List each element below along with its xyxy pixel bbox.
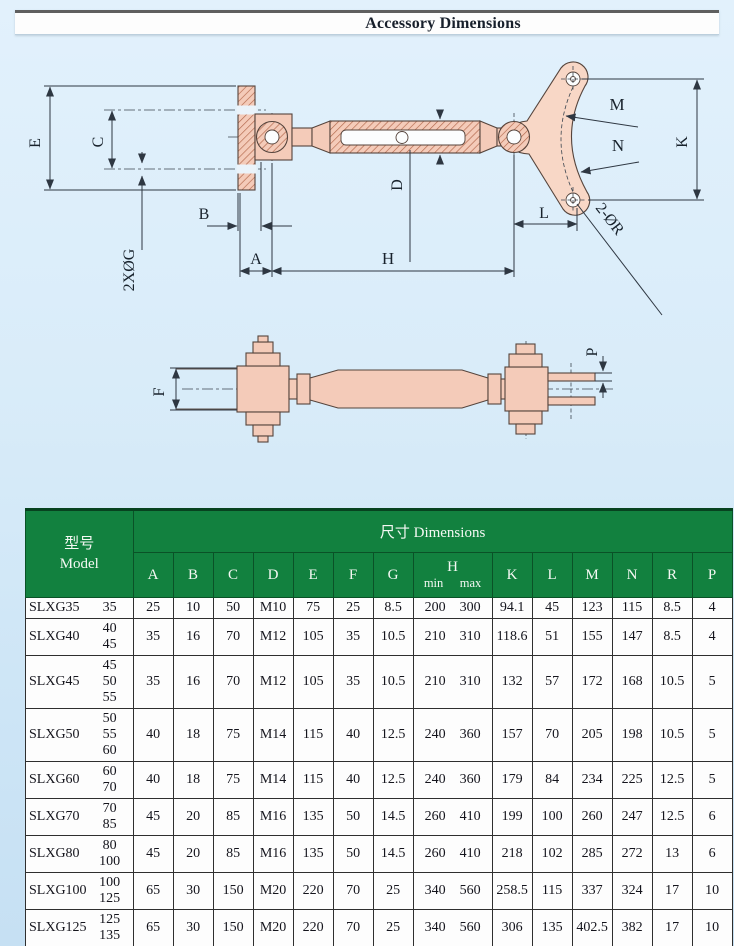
size-value: 45 (87, 637, 133, 653)
cell-c: 150 (213, 910, 253, 946)
cell-p: 10 (692, 910, 732, 946)
cell-g: 10.5 (373, 619, 413, 656)
model-sizes: 505560 (87, 711, 133, 759)
cell-a: 35 (133, 619, 173, 656)
col-header-m: M (572, 553, 612, 598)
model-sizes: 125135 (87, 912, 133, 944)
cell-f: 35 (333, 656, 373, 709)
cell-b: 30 (173, 910, 213, 946)
cell-n: 324 (612, 873, 652, 910)
dim-label-p: P (584, 347, 601, 356)
model-name: SLXG125 (26, 920, 87, 936)
page-title: Accessory Dimensions (365, 15, 521, 33)
size-value: 55 (87, 690, 133, 706)
model-cell: SLXG3535 (26, 598, 134, 619)
cell-g: 12.5 (373, 762, 413, 799)
size-value: 100 (87, 854, 133, 870)
table-row: SLXG1001001256530150M202207025340560258.… (26, 873, 733, 910)
size-value: 40 (87, 621, 133, 637)
cell-k: 199 (492, 799, 532, 836)
cell-a: 65 (133, 873, 173, 910)
size-value: 125 (87, 891, 133, 907)
dimensions-group-header: 尺寸 Dimensions (133, 510, 732, 553)
table-body: SLXG3535251050M1075258.520030094.1451231… (26, 598, 733, 946)
cell-f: 40 (333, 762, 373, 799)
table-row: SLXG3535251050M1075258.520030094.1451231… (26, 598, 733, 619)
cell-d: M12 (253, 619, 293, 656)
model-name: SLXG45 (26, 674, 80, 690)
dim-label-l: L (539, 205, 549, 222)
model-cell: SLXG404045 (26, 619, 134, 656)
cell-g: 14.5 (373, 836, 413, 873)
cell-l: 102 (532, 836, 572, 873)
cell-d: M14 (253, 709, 293, 762)
cell-l: 45 (532, 598, 572, 619)
cell-f: 50 (333, 799, 373, 836)
cell-c: 70 (213, 619, 253, 656)
cell-c: 85 (213, 799, 253, 836)
cell-e: 115 (293, 709, 333, 762)
cell-p: 5 (692, 709, 732, 762)
cell-g: 14.5 (373, 799, 413, 836)
cell-f: 50 (333, 836, 373, 873)
model-sizes: 455055 (87, 658, 133, 706)
table-row: SLXG45455055351670M121053510.52103101325… (26, 656, 733, 709)
cell-b: 20 (173, 836, 213, 873)
cell-c: 75 (213, 709, 253, 762)
title-bar: Accessory Dimensions (15, 10, 719, 35)
cell-b: 16 (173, 656, 213, 709)
model-cell: SLXG8080100 (26, 836, 134, 873)
cell-d: M20 (253, 910, 293, 946)
cell-k: 94.1 (492, 598, 532, 619)
cell-r: 12.5 (652, 799, 692, 836)
cell-d: M10 (253, 598, 293, 619)
cell-k: 157 (492, 709, 532, 762)
cell-g: 12.5 (373, 709, 413, 762)
size-value: 70 (87, 780, 133, 796)
cell-h-max: 560 (460, 883, 481, 899)
cell-h-min: 340 (425, 883, 446, 899)
cell-r: 10.5 (652, 656, 692, 709)
table-header: 型号 Model 尺寸 Dimensions ABCDEFGHminmaxKLM… (26, 510, 733, 598)
cell-b: 10 (173, 598, 213, 619)
model-name: SLXG70 (26, 809, 80, 825)
table-row: SLXG50505560401875M141154012.52403601577… (26, 709, 733, 762)
cell-l: 57 (532, 656, 572, 709)
cell-a: 40 (133, 709, 173, 762)
cell-f: 70 (333, 910, 373, 946)
dim-label-a: A (250, 251, 262, 268)
model-name: SLXG100 (26, 883, 87, 899)
side-view: F P (151, 336, 614, 442)
cell-f: 35 (333, 619, 373, 656)
cell-b: 18 (173, 762, 213, 799)
cell-m: 337 (572, 873, 612, 910)
cell-m: 402.5 (572, 910, 612, 946)
side-left-clevis (237, 366, 289, 412)
cell-e: 105 (293, 619, 333, 656)
cell-h-max: 410 (460, 809, 481, 825)
model-sizes: 4045 (87, 621, 133, 653)
cell-r: 12.5 (652, 762, 692, 799)
dim-label-2xog: 2XØG (121, 248, 138, 291)
cell-n: 382 (612, 910, 652, 946)
cell-h-min: 210 (425, 629, 446, 645)
cell-c: 85 (213, 836, 253, 873)
size-value: 35 (87, 600, 133, 616)
cell-e: 135 (293, 799, 333, 836)
model-sizes: 100125 (87, 875, 133, 907)
dim-label-m: M (609, 95, 624, 114)
cell-k: 132 (492, 656, 532, 709)
cell-c: 70 (213, 656, 253, 709)
cell-m: 234 (572, 762, 612, 799)
cell-c: 75 (213, 762, 253, 799)
col-header-h: Hminmax (413, 553, 492, 598)
cell-h-min: 240 (425, 772, 446, 788)
cell-h-min: 210 (425, 674, 446, 690)
model-name: SLXG40 (26, 629, 80, 645)
cell-h: 210310 (413, 656, 492, 709)
dim-label-f: F (151, 387, 168, 396)
cell-a: 40 (133, 762, 173, 799)
dim-label-k: K (674, 136, 691, 148)
dim-label-b: B (199, 206, 210, 223)
size-value: 135 (87, 928, 133, 944)
cell-n: 247 (612, 799, 652, 836)
col-header-l: L (532, 553, 572, 598)
cell-a: 65 (133, 910, 173, 946)
cell-r: 17 (652, 910, 692, 946)
col-header-p: P (692, 553, 732, 598)
col-header-b: B (173, 553, 213, 598)
model-cell: SLXG45455055 (26, 656, 134, 709)
cell-m: 260 (572, 799, 612, 836)
cell-r: 8.5 (652, 619, 692, 656)
cell-e: 220 (293, 873, 333, 910)
cell-h: 240360 (413, 709, 492, 762)
size-value: 55 (87, 727, 133, 743)
col-header-r: R (652, 553, 692, 598)
size-value: 85 (87, 817, 133, 833)
cell-g: 10.5 (373, 656, 413, 709)
cell-r: 8.5 (652, 598, 692, 619)
model-cell: SLXG100100125 (26, 873, 134, 910)
table-row: SLXG1251251356530150M2022070253405603061… (26, 910, 733, 946)
cell-a: 25 (133, 598, 173, 619)
cell-b: 20 (173, 799, 213, 836)
cell-h-max: 560 (460, 920, 481, 936)
cell-e: 105 (293, 656, 333, 709)
cell-l: 70 (532, 709, 572, 762)
cell-h-min: 240 (425, 727, 446, 743)
cell-h-max: 310 (460, 674, 481, 690)
col-header-a: A (133, 553, 173, 598)
cell-g: 25 (373, 910, 413, 946)
cell-n: 225 (612, 762, 652, 799)
cell-h-min: 340 (425, 920, 446, 936)
cell-h: 240360 (413, 762, 492, 799)
col-header-e: E (293, 553, 333, 598)
model-sizes: 6070 (87, 764, 133, 796)
cell-a: 45 (133, 836, 173, 873)
dim-label-d: D (389, 179, 406, 191)
cell-k: 258.5 (492, 873, 532, 910)
cell-n: 198 (612, 709, 652, 762)
cell-b: 16 (173, 619, 213, 656)
dim-label-c: C (90, 137, 107, 148)
cell-e: 135 (293, 836, 333, 873)
cell-h-max: 360 (460, 772, 481, 788)
cell-m: 155 (572, 619, 612, 656)
size-value: 45 (87, 658, 133, 674)
cell-n: 272 (612, 836, 652, 873)
cell-m: 123 (572, 598, 612, 619)
dims-header-en: Dimensions (414, 525, 486, 541)
cell-p: 6 (692, 836, 732, 873)
cell-k: 118.6 (492, 619, 532, 656)
cell-b: 30 (173, 873, 213, 910)
size-value: 125 (87, 912, 133, 928)
cell-h-max: 360 (460, 727, 481, 743)
cell-g: 8.5 (373, 598, 413, 619)
side-body (310, 370, 488, 408)
size-value: 100 (87, 875, 133, 891)
cell-l: 135 (532, 910, 572, 946)
cell-h-max: 410 (460, 846, 481, 862)
cell-f: 25 (333, 598, 373, 619)
catalog-page: Accessory Dimensions (0, 0, 734, 946)
col-header-n: N (612, 553, 652, 598)
col-header-c: C (213, 553, 253, 598)
cell-k: 306 (492, 910, 532, 946)
model-name: SLXG35 (26, 600, 80, 616)
flange-plate (238, 86, 255, 190)
table-row: SLXG707085452085M161355014.5260410199100… (26, 799, 733, 836)
model-cell: SLXG50505560 (26, 709, 134, 762)
cell-p: 4 (692, 619, 732, 656)
size-value: 80 (87, 838, 133, 854)
cell-h: 260410 (413, 836, 492, 873)
cell-p: 5 (692, 656, 732, 709)
cell-h: 210310 (413, 619, 492, 656)
cell-h: 340560 (413, 910, 492, 946)
dims-header-cn: 尺寸 (380, 525, 410, 541)
dim-label-h: H (382, 249, 394, 268)
table-row: SLXG606070401875M141154012.5240360179842… (26, 762, 733, 799)
cell-h-min: 260 (425, 809, 446, 825)
model-name: SLXG60 (26, 772, 80, 788)
table-row: SLXG8080100452085M161355014.526041021810… (26, 836, 733, 873)
cell-m: 205 (572, 709, 612, 762)
model-name: SLXG80 (26, 846, 80, 862)
cell-p: 5 (692, 762, 732, 799)
col-header-d: D (253, 553, 293, 598)
col-header-f: F (333, 553, 373, 598)
cell-m: 172 (572, 656, 612, 709)
model-header-cn: 型号 (26, 534, 133, 554)
cell-h-max: 310 (460, 629, 481, 645)
cell-n: 168 (612, 656, 652, 709)
model-cell: SLXG707085 (26, 799, 134, 836)
technical-drawing: E C 2XØG B A H D L (0, 40, 734, 505)
cell-h-max: 300 (460, 600, 481, 616)
cell-e: 75 (293, 598, 333, 619)
cell-d: M16 (253, 836, 293, 873)
cell-d: M20 (253, 873, 293, 910)
col-header-g: G (373, 553, 413, 598)
cell-l: 84 (532, 762, 572, 799)
cell-r: 10.5 (652, 709, 692, 762)
table-row: SLXG404045351670M121053510.5210310118.65… (26, 619, 733, 656)
model-name: SLXG50 (26, 727, 80, 743)
model-sizes: 7085 (87, 801, 133, 833)
cell-n: 115 (612, 598, 652, 619)
cell-r: 13 (652, 836, 692, 873)
cell-f: 40 (333, 709, 373, 762)
cell-a: 45 (133, 799, 173, 836)
cell-l: 51 (532, 619, 572, 656)
cell-h: 260410 (413, 799, 492, 836)
cell-g: 25 (373, 873, 413, 910)
cell-f: 70 (333, 873, 373, 910)
cell-n: 147 (612, 619, 652, 656)
fork-prong-bottom (548, 397, 595, 405)
cell-d: M12 (253, 656, 293, 709)
fork-prong-top (548, 373, 595, 381)
cell-p: 6 (692, 799, 732, 836)
size-value: 50 (87, 674, 133, 690)
cell-l: 115 (532, 873, 572, 910)
col-subheader-max: max (460, 576, 482, 591)
cell-k: 179 (492, 762, 532, 799)
cell-m: 285 (572, 836, 612, 873)
cell-h: 200300 (413, 598, 492, 619)
cell-h-min: 260 (425, 846, 446, 862)
col-header-k: K (492, 553, 532, 598)
cell-d: M14 (253, 762, 293, 799)
cell-p: 4 (692, 598, 732, 619)
cell-k: 218 (492, 836, 532, 873)
dim-label-e: E (27, 138, 44, 148)
cell-b: 18 (173, 709, 213, 762)
dim-label-2or: 2-ØR (592, 200, 627, 239)
cell-d: M16 (253, 799, 293, 836)
cell-e: 115 (293, 762, 333, 799)
model-column-header: 型号 Model (26, 510, 134, 598)
side-right-clevis (505, 367, 548, 411)
cell-r: 17 (652, 873, 692, 910)
cell-e: 220 (293, 910, 333, 946)
col-subheader-min: min (424, 576, 443, 591)
dimensions-table: 型号 Model 尺寸 Dimensions ABCDEFGHminmaxKLM… (25, 508, 733, 946)
model-header-en: Model (26, 554, 133, 574)
cell-h-min: 200 (425, 600, 446, 616)
size-value: 50 (87, 711, 133, 727)
header-row-groups: 型号 Model 尺寸 Dimensions (26, 510, 733, 553)
model-sizes: 35 (87, 600, 133, 616)
size-value: 70 (87, 801, 133, 817)
model-sizes: 80100 (87, 838, 133, 870)
size-value: 60 (87, 743, 133, 759)
cell-c: 50 (213, 598, 253, 619)
cell-p: 10 (692, 873, 732, 910)
cell-a: 35 (133, 656, 173, 709)
front-view: E C 2XØG B A H D L (27, 62, 704, 315)
model-cell: SLXG606070 (26, 762, 134, 799)
cell-l: 100 (532, 799, 572, 836)
size-value: 60 (87, 764, 133, 780)
cell-c: 150 (213, 873, 253, 910)
cell-h: 340560 (413, 873, 492, 910)
model-cell: SLXG125125135 (26, 910, 134, 946)
dimensions-table-container: 型号 Model 尺寸 Dimensions ABCDEFGHminmaxKLM… (25, 508, 733, 946)
dim-label-n: N (612, 136, 624, 155)
